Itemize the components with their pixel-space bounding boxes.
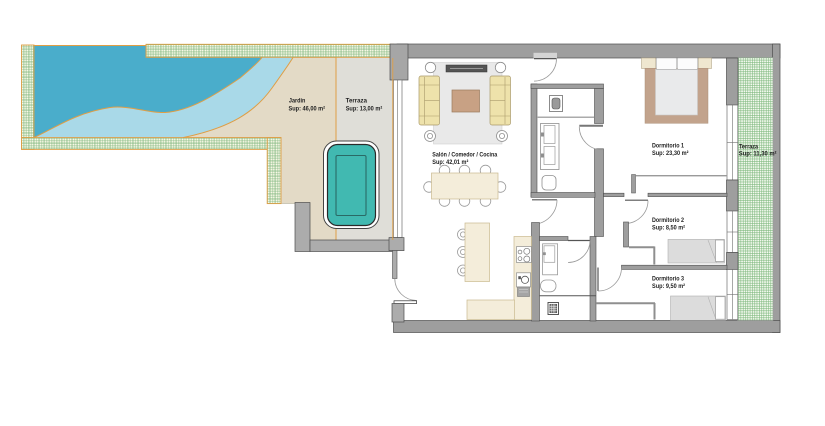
svg-text:Terraza: Terraza bbox=[346, 98, 368, 104]
svg-text:Sup: 8,50 m²: Sup: 8,50 m² bbox=[652, 225, 685, 232]
svg-text:Jardín: Jardín bbox=[289, 98, 306, 104]
svg-text:Terraza: Terraza bbox=[739, 144, 759, 150]
svg-text:Sup: 13,00 m²: Sup: 13,00 m² bbox=[346, 105, 383, 112]
svg-text:Sup: 9,50 m²: Sup: 9,50 m² bbox=[652, 283, 685, 290]
svg-text:Dormitorio 3: Dormitorio 3 bbox=[652, 276, 685, 282]
svg-text:Sup: 46,00 m²: Sup: 46,00 m² bbox=[289, 105, 326, 112]
svg-text:Dormitorio 1: Dormitorio 1 bbox=[652, 143, 685, 149]
svg-text:Sup: 23,30 m²: Sup: 23,30 m² bbox=[652, 150, 689, 157]
svg-text:Dormitorio 2: Dormitorio 2 bbox=[652, 218, 685, 224]
svg-text:Sup: 11,30 m²: Sup: 11,30 m² bbox=[739, 151, 777, 158]
svg-text:Salón / Comedor / Cocina: Salón / Comedor / Cocina bbox=[432, 153, 498, 159]
